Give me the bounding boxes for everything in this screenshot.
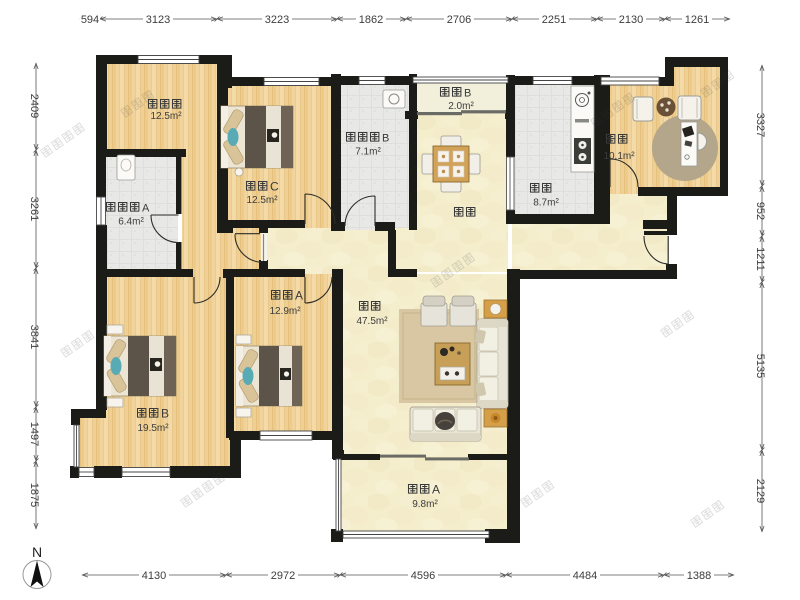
svg-text:2972: 2972 (271, 570, 295, 582)
svg-text:3123: 3123 (146, 14, 170, 26)
svg-text:3261: 3261 (28, 197, 40, 221)
svg-text:2409: 2409 (28, 94, 40, 118)
svg-text:12.5m²: 12.5m² (246, 195, 278, 206)
svg-text:4130: 4130 (142, 570, 166, 582)
svg-text:N: N (32, 544, 42, 560)
svg-text:A: A (432, 483, 440, 497)
svg-text:4596: 4596 (411, 570, 435, 582)
svg-text:B: B (161, 407, 169, 421)
svg-text:2706: 2706 (447, 14, 471, 26)
svg-text:6.4m²: 6.4m² (118, 217, 144, 228)
svg-text:1211: 1211 (754, 247, 766, 271)
svg-text:12.5m²: 12.5m² (150, 111, 182, 122)
svg-text:1497: 1497 (28, 422, 40, 446)
svg-text:2.0m²: 2.0m² (448, 101, 474, 112)
svg-text:1388: 1388 (687, 570, 711, 582)
svg-text:594: 594 (81, 14, 99, 26)
svg-text:1862: 1862 (359, 14, 383, 26)
svg-text:1261: 1261 (685, 14, 709, 26)
svg-text:5135: 5135 (754, 354, 766, 378)
svg-text:8.7m²: 8.7m² (533, 198, 559, 209)
svg-text:3327: 3327 (754, 113, 766, 137)
svg-text:7.1m²: 7.1m² (355, 147, 381, 158)
svg-text:952: 952 (754, 202, 766, 220)
svg-text:2129: 2129 (754, 479, 766, 503)
svg-text:10.1m²: 10.1m² (603, 151, 635, 162)
svg-text:2130: 2130 (619, 14, 643, 26)
svg-text:9.8m²: 9.8m² (412, 499, 438, 510)
svg-text:4484: 4484 (573, 570, 597, 582)
svg-text:3223: 3223 (265, 14, 289, 26)
svg-text:1875: 1875 (28, 483, 40, 507)
svg-text:B: B (464, 88, 471, 100)
svg-text:A: A (295, 289, 303, 303)
svg-text:2251: 2251 (542, 14, 566, 26)
svg-text:47.5m²: 47.5m² (356, 316, 388, 327)
svg-text:B: B (382, 133, 389, 145)
svg-text:19.5m²: 19.5m² (137, 423, 169, 434)
svg-text:3841: 3841 (28, 325, 40, 349)
svg-text:C: C (270, 180, 279, 194)
svg-text:12.9m²: 12.9m² (269, 306, 301, 317)
svg-text:A: A (142, 203, 150, 215)
